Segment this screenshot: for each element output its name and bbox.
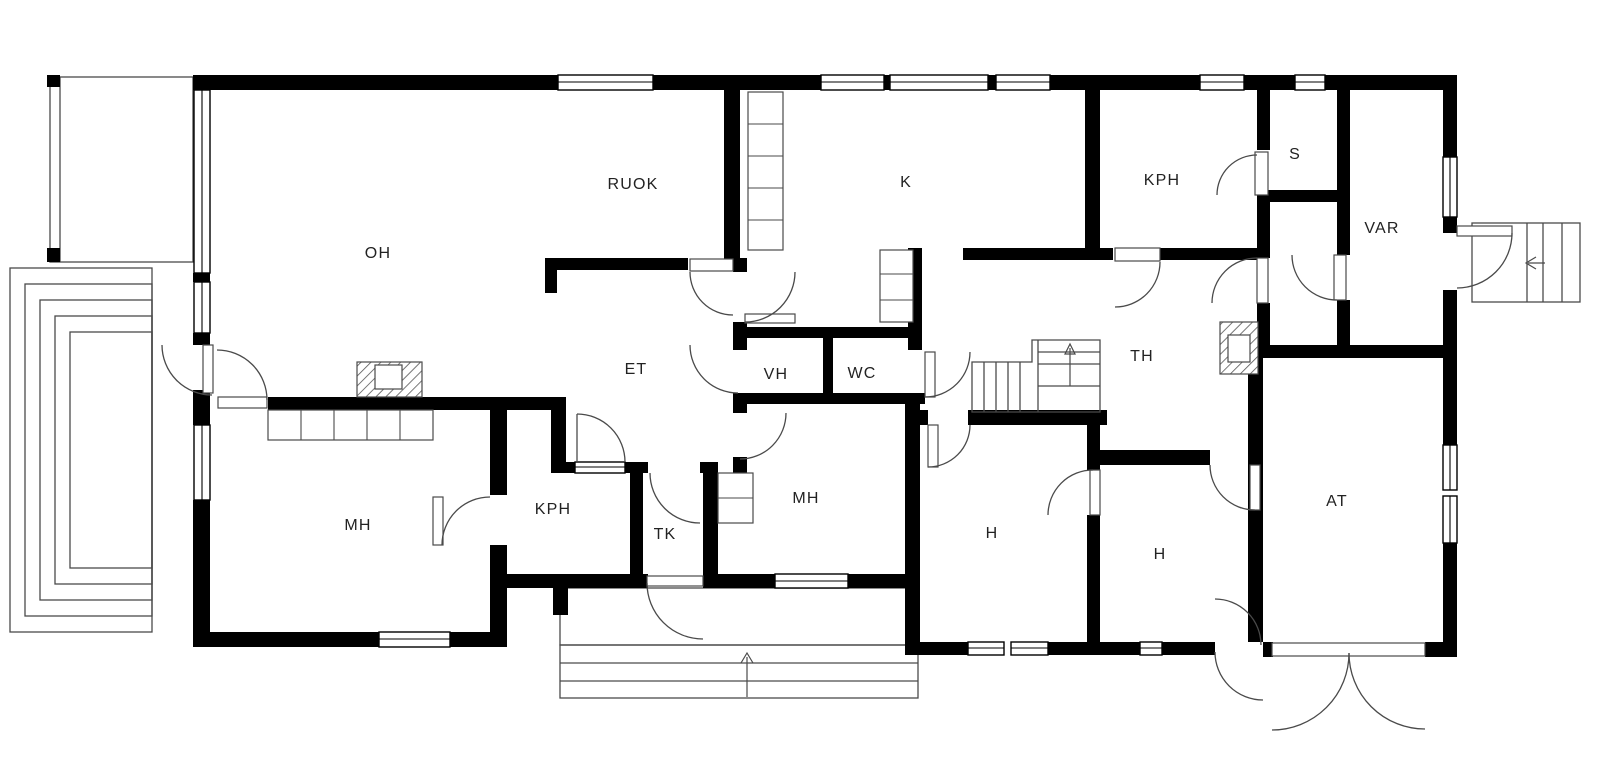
room-label-wc: WC	[847, 365, 876, 382]
floor-plan-drawing: OH RUOK K KPH S VAR ET VH WC TH MH KPH T…	[0, 0, 1600, 759]
wall	[193, 333, 210, 345]
wall	[630, 462, 643, 588]
wall	[553, 588, 568, 615]
wall	[1443, 543, 1457, 657]
wall	[833, 327, 913, 338]
wall	[703, 462, 718, 588]
kitchen-cabinets	[748, 92, 783, 250]
wall	[1050, 75, 1200, 90]
window	[1295, 75, 1325, 90]
bedroom-closets	[268, 410, 433, 440]
room-label-vh: VH	[764, 366, 789, 383]
wall	[1255, 450, 1263, 465]
room-label-th: TH	[1130, 348, 1154, 365]
wall	[963, 248, 1100, 260]
window	[968, 642, 1004, 655]
room-label-s: S	[1289, 146, 1301, 163]
wall	[1100, 450, 1210, 465]
room-label-mh-mid: MH	[792, 490, 819, 507]
window	[890, 75, 988, 90]
wall	[1337, 90, 1350, 255]
wall	[823, 327, 833, 404]
wall	[733, 393, 925, 404]
window	[194, 425, 210, 500]
wall	[1257, 345, 1457, 358]
window	[1011, 642, 1048, 655]
window	[1443, 157, 1457, 217]
wall	[551, 462, 575, 473]
glass-partition	[575, 462, 625, 473]
wall	[724, 90, 740, 260]
wardrobes	[718, 473, 753, 523]
window	[1140, 642, 1162, 655]
wall	[1443, 290, 1457, 445]
room-label-h-left: H	[986, 525, 999, 542]
wall	[918, 410, 928, 425]
wall	[1443, 217, 1457, 233]
wall	[545, 258, 557, 293]
window	[821, 75, 884, 90]
room-label-kph-low: KPH	[535, 501, 572, 518]
deck-post	[47, 248, 60, 262]
window	[1443, 445, 1457, 490]
chimney	[1220, 322, 1258, 374]
wall	[1257, 90, 1270, 150]
wall	[490, 545, 507, 647]
window	[558, 75, 653, 90]
deck-post	[47, 75, 60, 87]
wall	[653, 75, 821, 90]
room-label-et: ET	[625, 361, 648, 378]
wall	[1244, 75, 1295, 90]
window-mullion	[884, 75, 890, 90]
window	[996, 75, 1050, 90]
window	[194, 282, 210, 333]
wall	[745, 327, 823, 338]
wall	[1443, 75, 1457, 157]
wall	[545, 258, 688, 270]
wall	[1085, 90, 1100, 248]
wall	[490, 574, 648, 588]
wall	[193, 500, 210, 632]
wall	[1325, 75, 1457, 90]
wall	[193, 273, 210, 282]
room-label-k: K	[900, 174, 912, 191]
floor-plan-page: OH RUOK K KPH S VAR ET VH WC TH MH KPH T…	[0, 0, 1600, 759]
wall	[733, 322, 747, 350]
wall	[733, 258, 747, 272]
wall	[1160, 248, 1260, 260]
room-label-oh: OH	[365, 245, 391, 262]
window-mullion	[988, 75, 996, 90]
wall	[1087, 515, 1100, 655]
wall	[1257, 190, 1340, 202]
wall	[1087, 410, 1100, 470]
wall	[268, 397, 563, 410]
hall-cabinets	[880, 250, 913, 322]
window	[1200, 75, 1244, 90]
wall	[551, 397, 566, 473]
room-label-ruok: RUOK	[607, 176, 658, 193]
wall	[1162, 642, 1215, 655]
room-label-tk: TK	[654, 526, 677, 543]
wall	[490, 398, 507, 495]
wall	[193, 632, 379, 647]
window	[379, 632, 450, 647]
wall	[700, 462, 718, 473]
wall	[1100, 248, 1113, 260]
room-label-h-right: H	[1154, 546, 1167, 563]
wall	[905, 397, 920, 655]
room-label-at: AT	[1326, 493, 1348, 510]
wall	[193, 75, 558, 90]
room-label-kph-top: KPH	[1144, 172, 1181, 189]
window	[775, 574, 848, 588]
room-label-mh-left: MH	[344, 517, 371, 534]
fireplace	[357, 362, 422, 397]
window	[194, 90, 210, 273]
room-label-var: VAR	[1364, 220, 1399, 237]
window	[1443, 496, 1457, 543]
